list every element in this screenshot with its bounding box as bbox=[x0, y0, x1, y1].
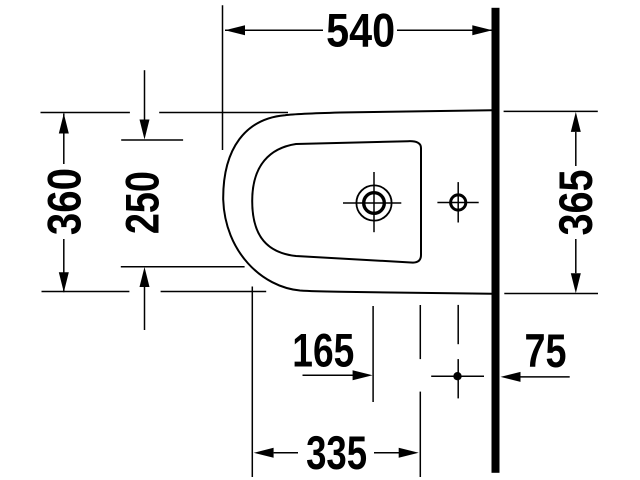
svg-text:250: 250 bbox=[115, 171, 168, 234]
svg-text:540: 540 bbox=[326, 4, 395, 57]
svg-text:75: 75 bbox=[525, 324, 567, 377]
svg-text:365: 365 bbox=[549, 170, 602, 236]
svg-text:360: 360 bbox=[37, 168, 90, 235]
svg-text:335: 335 bbox=[306, 426, 367, 479]
svg-text:165: 165 bbox=[292, 324, 354, 377]
